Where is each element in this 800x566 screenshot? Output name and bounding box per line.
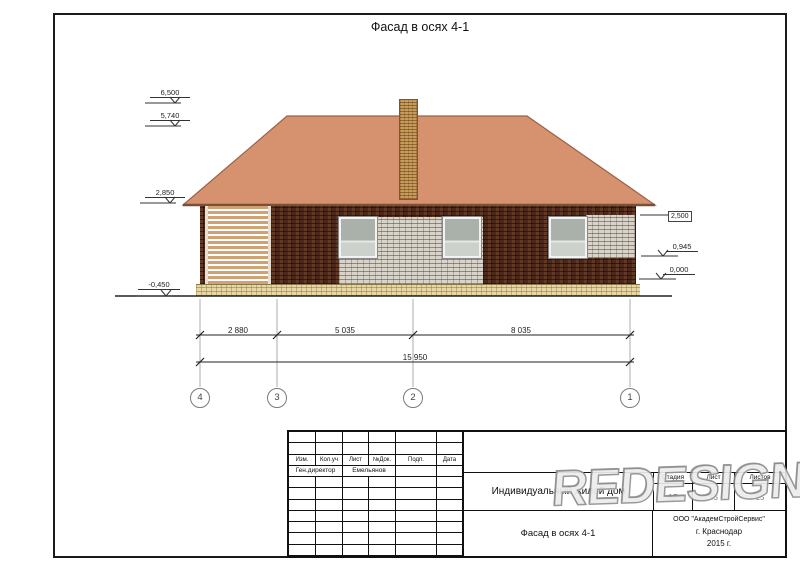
empty-cell	[316, 477, 343, 488]
window-2	[443, 217, 481, 258]
empty-cell	[343, 488, 369, 499]
axis-4: 4	[190, 392, 210, 403]
level-label-ridge: 5,740	[150, 111, 190, 121]
empty-cell	[437, 533, 463, 544]
col-header: Изм.	[289, 455, 316, 466]
empty-cell	[369, 488, 396, 499]
axis-2: 2	[403, 392, 423, 403]
empty-cell	[316, 522, 343, 533]
empty-cell	[396, 545, 437, 556]
empty-cell	[289, 477, 316, 488]
empty-cell	[369, 500, 396, 511]
empty-cell	[289, 533, 316, 544]
empty-cell	[437, 545, 463, 556]
empty-cell	[289, 511, 316, 522]
organization-city: г. Краснодар	[653, 526, 785, 538]
empty-cell	[369, 443, 396, 454]
axis-1: 1	[620, 392, 640, 403]
organization-cell: ООО "АкадемСтройСервис" г. Краснодар 201…	[653, 511, 785, 556]
col-header: Лист	[343, 455, 369, 466]
organization-year: 2015 г.	[653, 538, 785, 550]
title-block: Изм.Кол.учЛист№Док.Подп.ДатаГен.директор…	[287, 430, 787, 558]
document-code-cell	[463, 432, 785, 473]
level-label-wall-top: 2,500	[668, 211, 692, 222]
empty-cell	[289, 488, 316, 499]
empty-cell	[289, 522, 316, 533]
window-1	[339, 217, 377, 258]
level-label-eave: 2,850	[145, 188, 185, 198]
col-header: Кол.уч	[316, 455, 343, 466]
object-name-cell: Индивидуальный жилой дом	[463, 473, 653, 511]
empty-cell	[437, 500, 463, 511]
empty-cell	[343, 443, 369, 454]
empty-cell	[396, 511, 437, 522]
empty-cell	[369, 545, 396, 556]
empty-cell	[369, 432, 396, 443]
sheets-value: 15	[734, 484, 785, 511]
dim-3-2: 5 035	[315, 326, 375, 335]
empty-cell	[289, 443, 316, 454]
empty-cell	[343, 533, 369, 544]
empty-cell	[369, 522, 396, 533]
col-header: №Док.	[369, 455, 396, 466]
level-label-sill: 0,945	[666, 242, 698, 252]
empty-cell	[369, 511, 396, 522]
empty-cell	[289, 500, 316, 511]
empty-cell	[396, 443, 437, 454]
dim-2-1: 8 035	[491, 326, 551, 335]
empty-cell	[316, 511, 343, 522]
sheets-header: Листов	[734, 473, 785, 484]
empty-cell	[316, 545, 343, 556]
empty-cell	[396, 533, 437, 544]
dim-4-3: 2 880	[208, 326, 268, 335]
empty-cell	[343, 511, 369, 522]
signer-name-cell: Емельянов	[343, 466, 396, 477]
empty-cell	[396, 488, 437, 499]
empty-cell	[369, 477, 396, 488]
empty-cell	[316, 500, 343, 511]
empty-cell	[396, 477, 437, 488]
role-cell: Ген.директор	[289, 466, 343, 477]
empty-cell	[437, 511, 463, 522]
empty-cell	[396, 466, 437, 477]
stage-header: Стадия	[653, 473, 692, 484]
axis-3: 3	[267, 392, 287, 403]
dim-total: 15 950	[385, 353, 445, 362]
empty-cell	[316, 488, 343, 499]
empty-cell	[437, 522, 463, 533]
plinth	[196, 284, 640, 296]
empty-cell	[316, 432, 343, 443]
empty-cell	[343, 522, 369, 533]
empty-cell	[396, 522, 437, 533]
empty-cell	[396, 500, 437, 511]
empty-cell	[437, 477, 463, 488]
empty-cell	[289, 545, 316, 556]
stage-value: АР	[653, 484, 692, 511]
empty-cell	[343, 545, 369, 556]
drawing-sheet: Фасад в осях 4-1	[0, 0, 800, 566]
empty-cell	[369, 533, 396, 544]
level-label-ridge-top: 6,500	[150, 88, 190, 98]
empty-cell	[343, 432, 369, 443]
light-brick-patch	[586, 215, 635, 258]
drawing-name-cell: Фасад в осях 4-1	[463, 511, 653, 556]
sheet-heading: Фасад в осях 4-1	[53, 20, 787, 34]
level-label-zero: 0,000	[663, 265, 695, 275]
col-header: Подп.	[396, 455, 437, 466]
level-label-ground: -0,450	[138, 280, 180, 290]
empty-cell	[343, 477, 369, 488]
sheet-value: 13	[692, 484, 734, 511]
empty-cell	[437, 488, 463, 499]
empty-cell	[343, 500, 369, 511]
empty-cell	[396, 432, 437, 443]
revision-table: Изм.Кол.учЛист№Док.Подп.ДатаГен.директор…	[289, 432, 463, 556]
empty-cell	[316, 443, 343, 454]
empty-cell	[437, 466, 463, 477]
slat-panel	[205, 206, 271, 284]
empty-cell	[437, 432, 463, 443]
chimney	[399, 99, 418, 200]
empty-cell	[437, 443, 463, 454]
window-3	[549, 217, 587, 258]
empty-cell	[289, 432, 316, 443]
empty-cell	[316, 533, 343, 544]
sheet-header: Лист	[692, 473, 734, 484]
organization-name: ООО "АкадемСтройСервис"	[653, 514, 785, 526]
col-header: Дата	[437, 455, 463, 466]
